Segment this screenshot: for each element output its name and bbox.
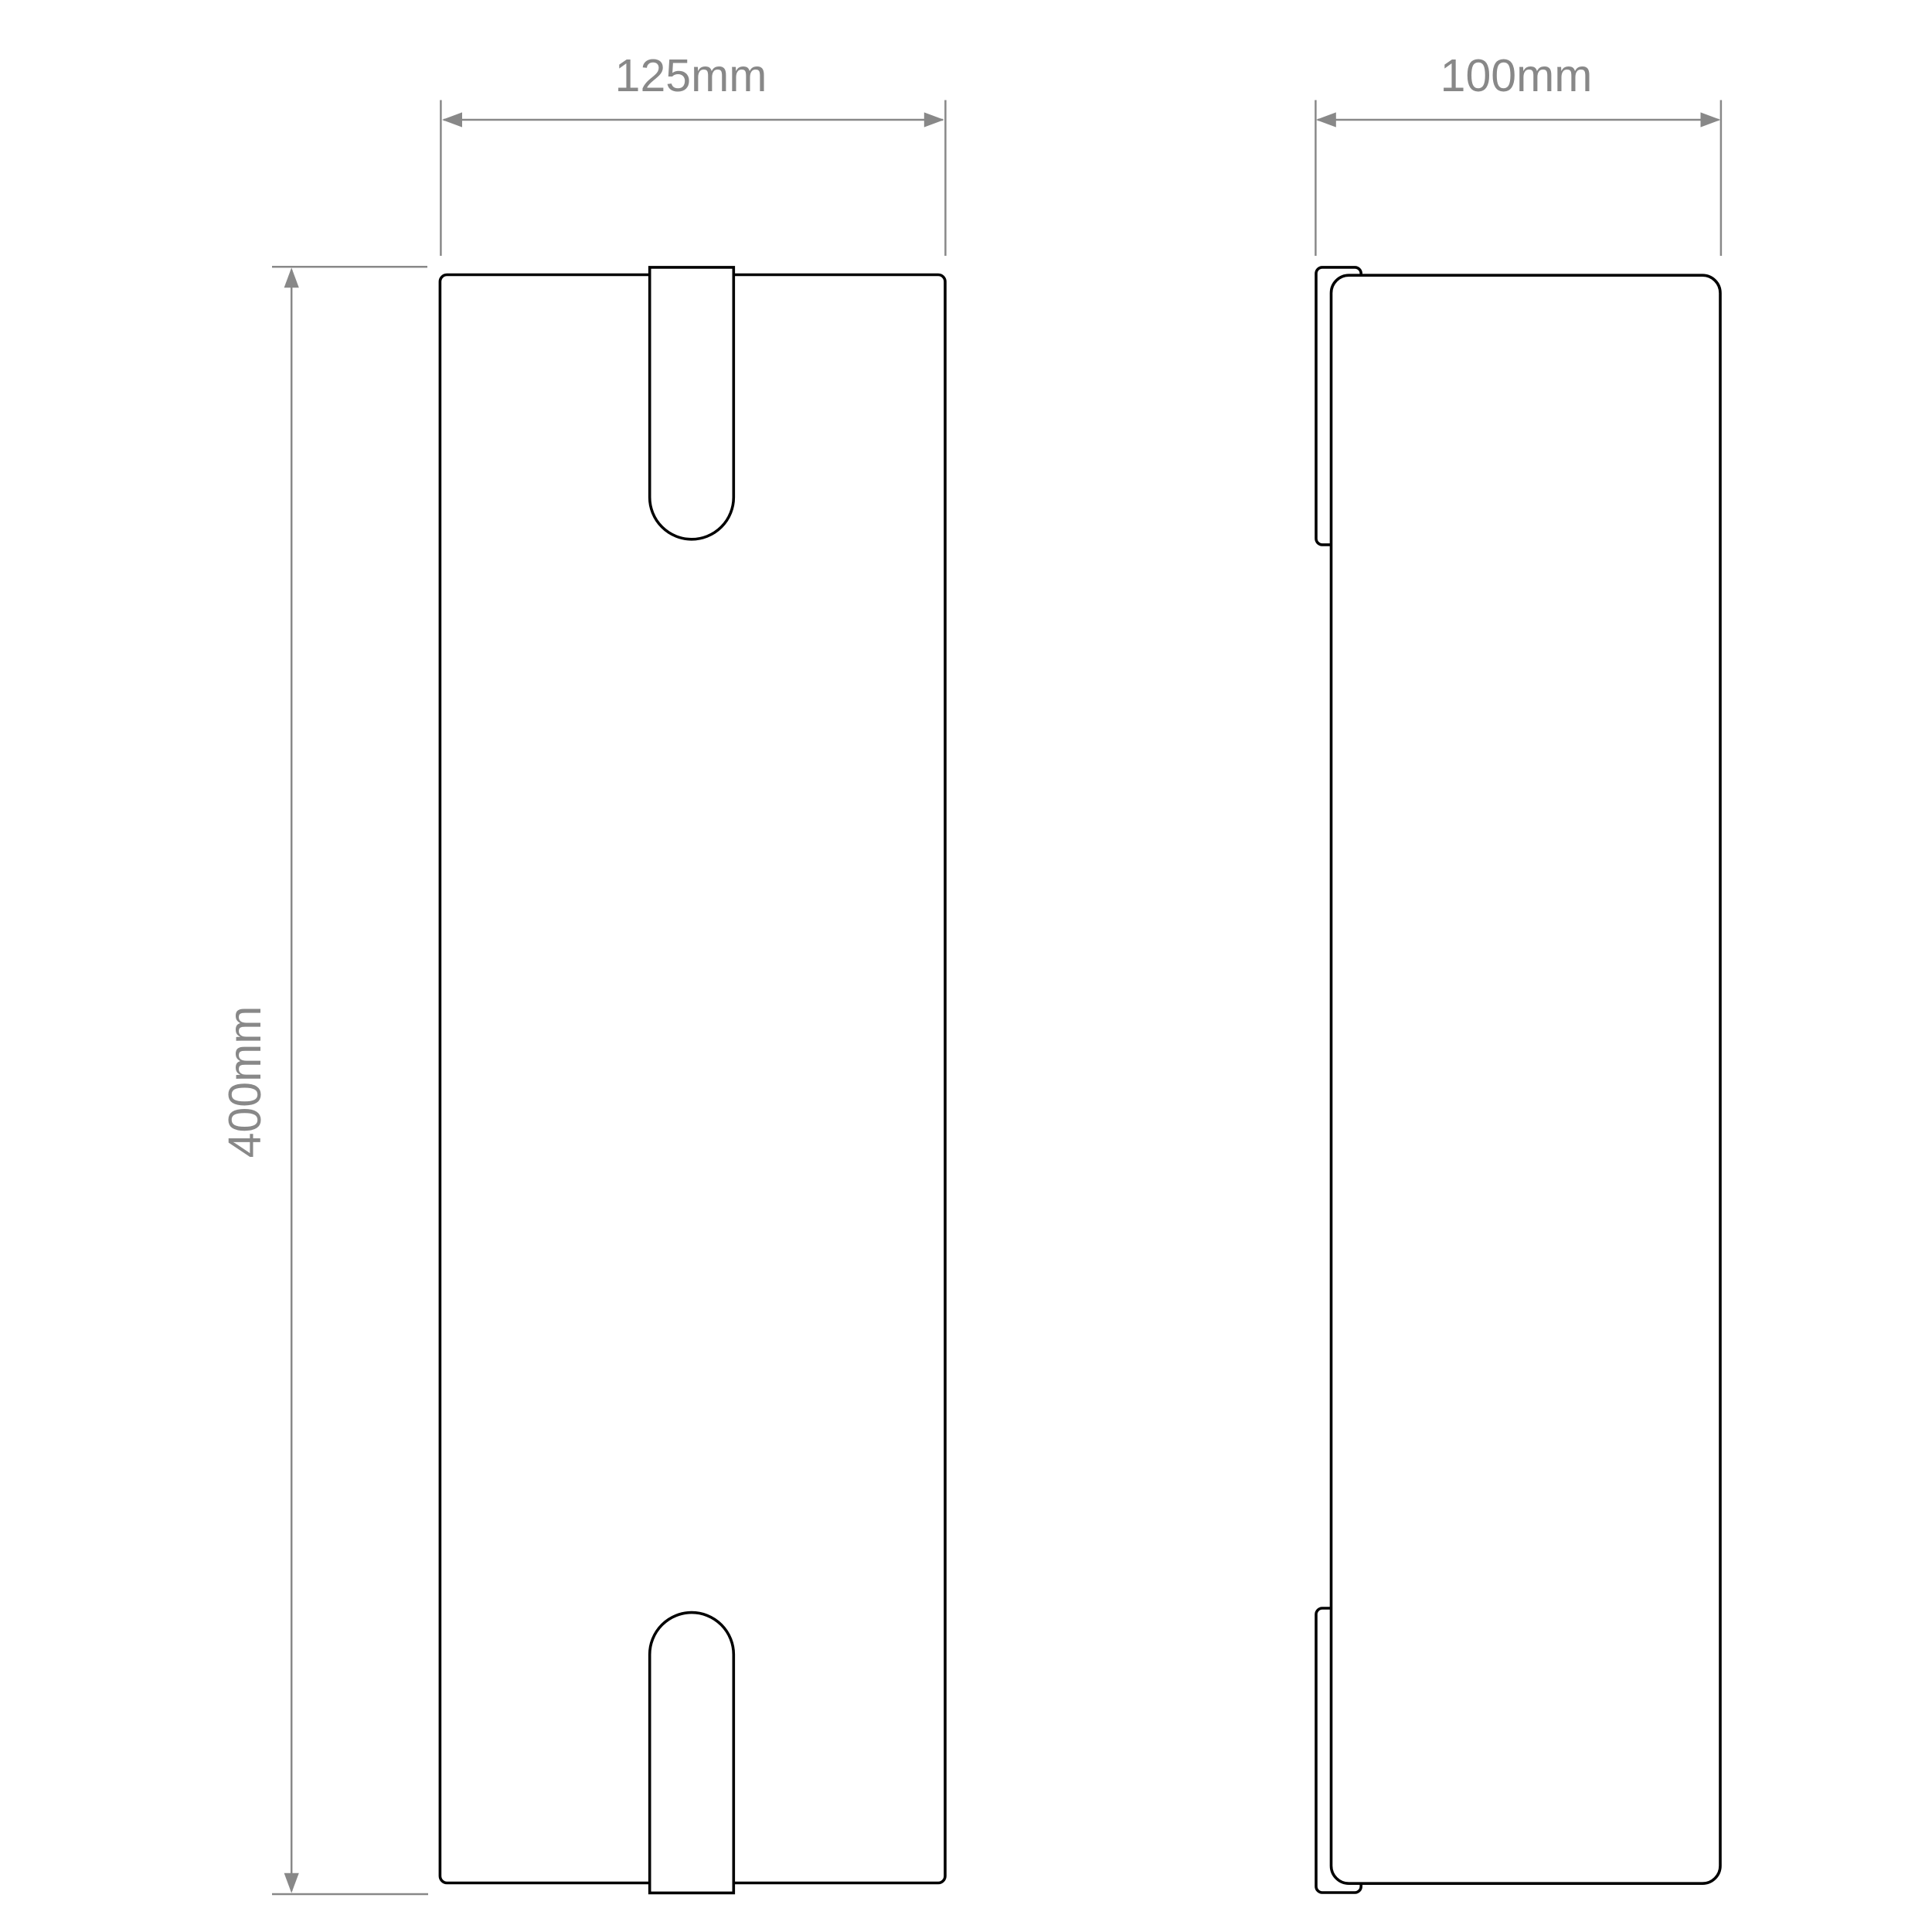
svg-text:100mm: 100mm [1440, 50, 1593, 101]
svg-text:125mm: 125mm [615, 50, 767, 101]
svg-text:400mm: 400mm [219, 1006, 270, 1158]
